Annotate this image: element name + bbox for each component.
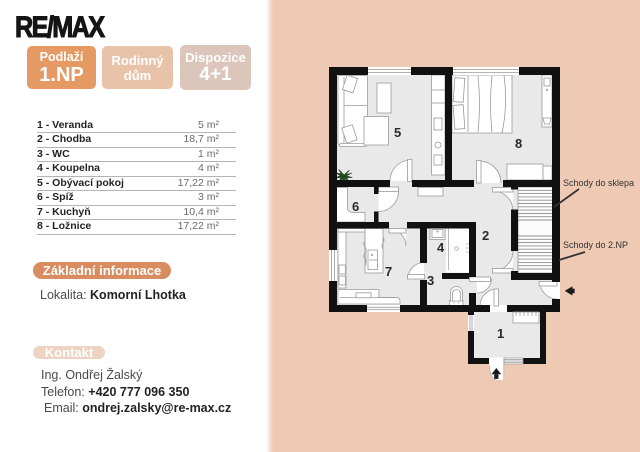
svg-text:1: 1	[497, 326, 504, 341]
svg-text:5: 5	[394, 125, 401, 140]
svg-text:4: 4	[437, 240, 445, 255]
svg-text:Schody do 2.NP: Schody do 2.NP	[563, 240, 628, 250]
svg-text:2: 2	[482, 228, 489, 243]
svg-text:6: 6	[352, 199, 359, 214]
svg-text:3: 3	[427, 273, 434, 288]
svg-text:Schody do sklepa: Schody do sklepa	[563, 178, 634, 188]
svg-text:7: 7	[385, 264, 392, 279]
svg-text:8: 8	[515, 136, 522, 151]
